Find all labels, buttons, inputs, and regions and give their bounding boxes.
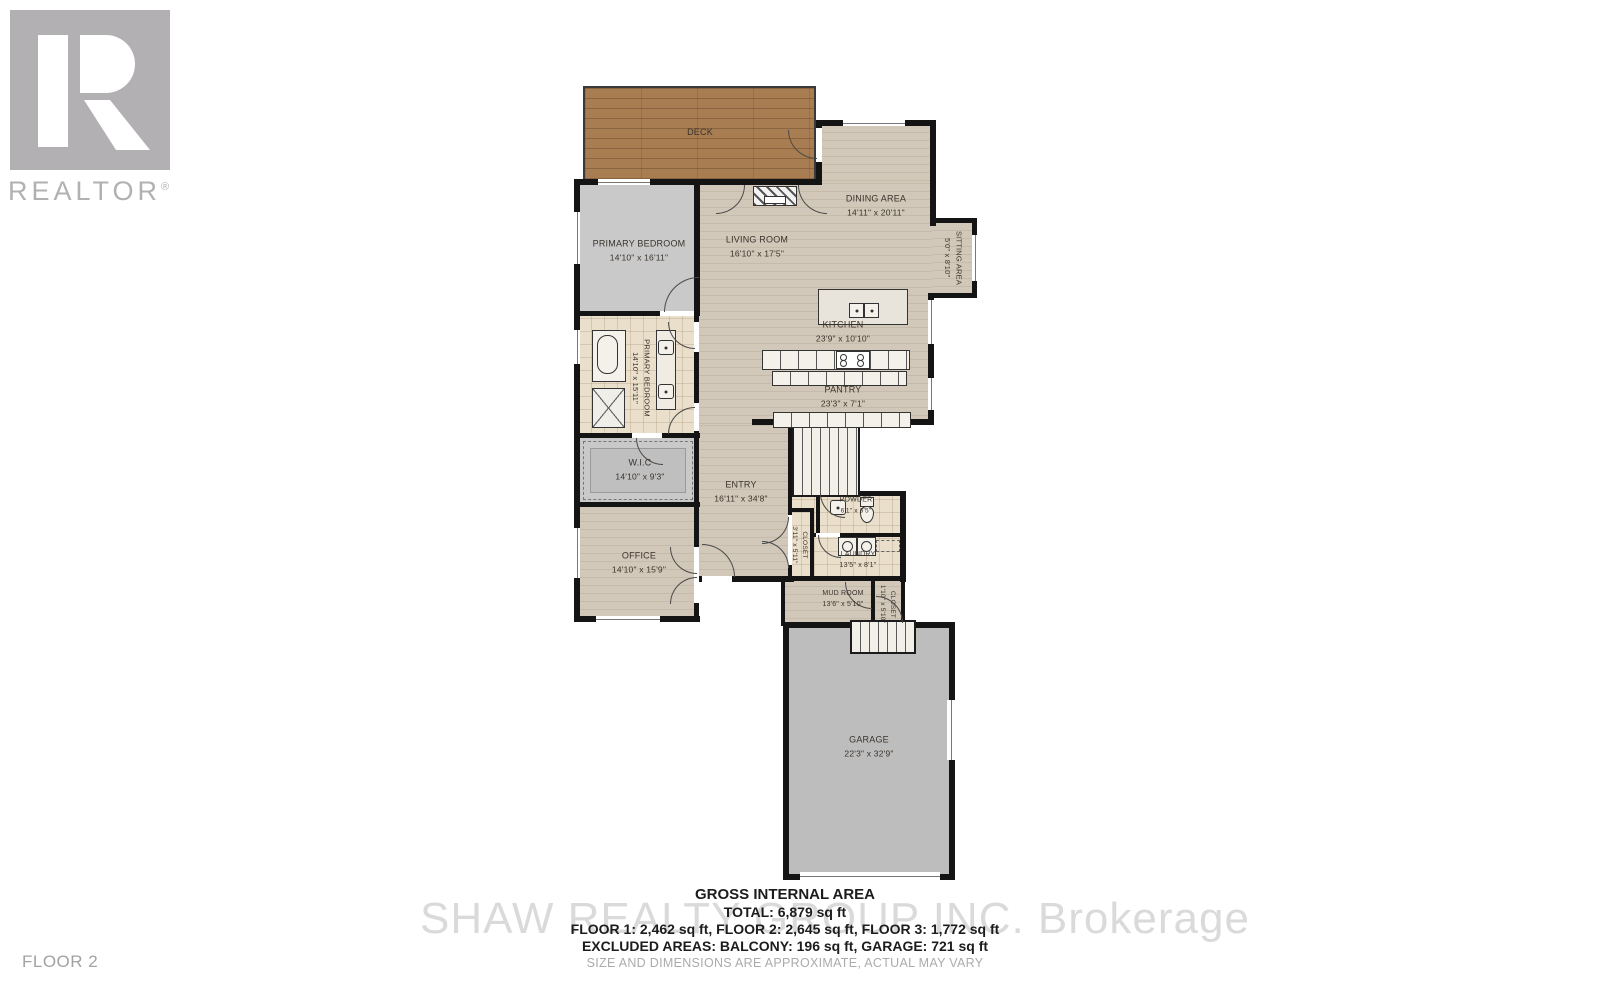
island-sink-icon bbox=[864, 303, 879, 318]
bathtub-icon bbox=[592, 330, 626, 382]
room-label-primary-bedroom: PRIMARY BEDROOM14'10" x 16'11" bbox=[593, 237, 686, 264]
window bbox=[574, 212, 580, 264]
realtor-logo-icon bbox=[10, 10, 170, 170]
summary-disclaimer: SIZE AND DIMENSIONS ARE APPROXIMATE, ACT… bbox=[430, 956, 1140, 970]
shower-icon bbox=[592, 388, 625, 428]
island-sink-icon bbox=[849, 303, 864, 318]
realtor-logo-text: REALTOR® bbox=[8, 176, 169, 207]
room-label-living-room: LIVING ROOM16'10" x 17'5" bbox=[726, 233, 788, 260]
window bbox=[598, 179, 650, 185]
window bbox=[947, 700, 955, 760]
summary-title: GROSS INTERNAL AREA bbox=[430, 886, 1140, 903]
stove-icon bbox=[836, 351, 870, 369]
laundry-counter bbox=[876, 540, 900, 552]
window bbox=[596, 616, 660, 622]
room-label-laundry: LAUNDRY13'5" x 8'1" bbox=[840, 550, 877, 572]
window bbox=[972, 235, 977, 281]
wall bbox=[930, 120, 936, 226]
window bbox=[928, 300, 934, 344]
room-label-closet-mud: CLOSET1'10" x 5'10" bbox=[877, 585, 897, 623]
pantry-cabinets-lower bbox=[773, 412, 911, 428]
summary-floors: FLOOR 1: 2,462 sq ft, FLOOR 2: 2,645 sq … bbox=[430, 921, 1140, 937]
room-label-office: OFFICE14'10" x 15'9" bbox=[612, 549, 666, 576]
window bbox=[928, 378, 934, 410]
sink-icon bbox=[658, 340, 674, 355]
sink-icon bbox=[658, 384, 674, 399]
wall bbox=[781, 576, 905, 581]
wall bbox=[574, 502, 700, 507]
floorplan-page: REALTOR® bbox=[0, 0, 1600, 1000]
garage-entry-steps bbox=[850, 620, 916, 654]
room-label-dining-area: DINING AREA14'11" x 20'11" bbox=[846, 192, 906, 219]
main-staircase bbox=[792, 425, 860, 497]
summary-excluded: EXCLUDED AREAS: BALCONY: 196 sq ft, GARA… bbox=[430, 938, 1140, 954]
room-label-kitchen: KITCHEN23'9" x 10'10" bbox=[816, 318, 870, 345]
fireplace-icon bbox=[753, 186, 797, 206]
wall bbox=[816, 491, 820, 537]
wall bbox=[930, 218, 977, 223]
room-label-pantry: PANTRY23'3" x 7'1" bbox=[821, 383, 865, 410]
room-label-entry: ENTRY16'11" x 34'8" bbox=[714, 478, 768, 505]
room-label-deck: DECK bbox=[687, 126, 713, 140]
registered-mark: ® bbox=[161, 181, 169, 193]
garage-door-opening bbox=[800, 872, 940, 880]
floor-number-label: FLOOR 2 bbox=[22, 952, 98, 972]
wall bbox=[810, 508, 814, 578]
summary-total: TOTAL: 6,879 sq ft bbox=[430, 904, 1140, 920]
window bbox=[843, 120, 905, 126]
room-label-sitting-area: SITTING AREA5'0" x 8'10" bbox=[942, 231, 965, 285]
room-label-garage: GARAGE22'3" x 32'9" bbox=[844, 733, 893, 760]
room-label-primary-bath: PRIMARY BEDROOM14'10" x 15'11" bbox=[630, 339, 653, 417]
room-label-powder: POWDER6'1" x 6'5" bbox=[840, 496, 873, 517]
area-summary: GROSS INTERNAL AREA TOTAL: 6,879 sq ft F… bbox=[430, 886, 1140, 970]
window bbox=[574, 528, 580, 578]
window bbox=[574, 330, 580, 364]
room-label-wic: W.I.C14'10" x 9'3" bbox=[615, 456, 664, 483]
room-label-mud-room: MUD ROOM13'6" x 5'10" bbox=[822, 589, 863, 611]
room-label-closet-hall: CLOSET3'11" x 5'11" bbox=[789, 526, 809, 563]
wall bbox=[781, 576, 785, 626]
wall bbox=[930, 293, 977, 298]
